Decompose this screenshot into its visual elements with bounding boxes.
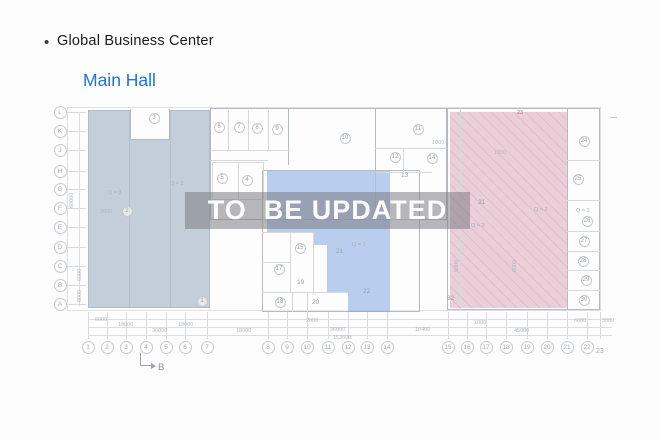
wall xyxy=(288,108,289,165)
room-number: 9 xyxy=(272,124,283,135)
grid-col-tick xyxy=(600,312,601,339)
room-number: 18 xyxy=(275,297,286,308)
room-number: 13 xyxy=(401,172,408,179)
grid-col-label: 15 xyxy=(442,341,455,354)
wall xyxy=(567,251,600,252)
dimension-label: 6000 xyxy=(454,260,460,272)
wall xyxy=(567,108,568,310)
dimension-label: 6000 xyxy=(77,290,83,302)
wall xyxy=(210,150,290,151)
grid-row-label: E xyxy=(54,221,67,234)
wall xyxy=(290,232,291,292)
grid-col-tick xyxy=(506,312,507,339)
section-marker-label: B xyxy=(158,362,164,373)
room-number: 25 xyxy=(573,174,584,185)
grid-col-tick xyxy=(268,312,269,339)
grid-col-tick xyxy=(567,312,568,339)
wall xyxy=(268,110,269,150)
grid-col-label: 18 xyxy=(500,341,513,354)
room-number: 26 xyxy=(582,216,593,227)
grid-row-label: J xyxy=(54,144,67,157)
room-number: 15 xyxy=(295,243,306,254)
grid-col-tick xyxy=(527,312,528,339)
wall xyxy=(403,148,404,172)
dimension-label: 6000 xyxy=(77,269,83,281)
room-number: 22 xyxy=(363,288,370,295)
grid-col-label: 12 xyxy=(342,341,355,354)
grid-row-tick xyxy=(68,112,86,113)
north-dash xyxy=(610,117,617,118)
room-number: 31 xyxy=(478,199,485,206)
dimension-label: 1000 xyxy=(474,320,486,326)
annotation-label: Q = 3 xyxy=(471,223,485,229)
wall xyxy=(567,160,600,161)
main-hall-link[interactable]: Main Hall xyxy=(83,70,156,91)
room-number: 7 xyxy=(234,122,245,133)
section-arrow-icon xyxy=(151,363,156,369)
grid-col-tick xyxy=(587,312,588,339)
wall xyxy=(262,232,313,233)
room-number: 21 xyxy=(336,248,343,255)
grid-col-label: 21 xyxy=(561,341,574,354)
grid-row-tick xyxy=(68,208,86,209)
grid-col-label: 4 xyxy=(140,341,153,354)
room-number: 28 xyxy=(578,256,589,267)
grid-col-label: 13 xyxy=(361,341,374,354)
annotation-label: 23 xyxy=(517,110,523,116)
dimension-label: 18000 xyxy=(178,322,193,328)
room-number: 27 xyxy=(579,236,590,247)
room-number: 32 xyxy=(447,295,454,302)
wall xyxy=(567,231,600,232)
annotation-label: Q = 3 xyxy=(352,242,366,248)
wall xyxy=(262,262,290,263)
grid-row-label: C xyxy=(54,260,67,273)
room-number: 17 xyxy=(274,264,285,275)
wall xyxy=(375,148,447,149)
screenshot-stage: • Global Business Center Main Hall B xyxy=(0,0,660,440)
wall xyxy=(210,160,268,161)
wall xyxy=(313,232,314,295)
wall xyxy=(567,290,600,291)
room-number: 29 xyxy=(581,275,592,286)
grid-col-tick xyxy=(448,312,449,339)
room-number: 10 xyxy=(340,133,351,144)
room-number: 2 xyxy=(122,206,133,217)
grid-col-tick xyxy=(88,312,89,339)
grid-col-label: 9 xyxy=(281,341,294,354)
annotation-label: Q = 3 xyxy=(170,181,184,187)
dimension-label: 18000 xyxy=(236,328,251,334)
grid-col-tick xyxy=(328,312,329,339)
grid-col-label: 10 xyxy=(301,341,314,354)
room-number: 3 xyxy=(149,113,160,124)
annotation-label: Q = 3 xyxy=(534,207,548,213)
room-number: 4 xyxy=(242,175,253,186)
grid-row-label: L xyxy=(54,106,67,119)
dimension-label: 18000 xyxy=(118,322,133,328)
grid-col-tick xyxy=(166,312,167,339)
wall xyxy=(228,110,229,150)
wall xyxy=(307,292,308,312)
grid-row-label: H xyxy=(54,165,67,178)
grid-col-label: 1 xyxy=(82,341,95,354)
grid-row-tick xyxy=(68,171,86,172)
grid-col-tick xyxy=(307,312,308,339)
room-number: 24 xyxy=(579,136,590,147)
dimension-label: 36000 xyxy=(152,328,167,334)
grid-col-label: 11 xyxy=(322,341,335,354)
grid-row-label: D xyxy=(54,241,67,254)
room-number: 30 xyxy=(579,295,590,306)
grid-col-label: 22 xyxy=(581,341,594,354)
grid-col-label: 3 xyxy=(120,341,133,354)
grid-row-tick xyxy=(68,266,86,267)
watermark-banner: TO BE UPDATED xyxy=(185,192,470,229)
room-number: 20 xyxy=(312,299,319,306)
room-number: 5 xyxy=(217,173,228,184)
grid-row-tick xyxy=(68,131,86,132)
dimension-label: 2000 xyxy=(306,318,318,324)
grid-col-label: 20 xyxy=(541,341,554,354)
grid-row-tick xyxy=(68,247,86,248)
grid-row-tick xyxy=(68,285,86,286)
grid-col-tick xyxy=(146,312,147,339)
room-number: 8 xyxy=(252,123,263,134)
grid-col-tick xyxy=(367,312,368,339)
page-title: Global Business Center xyxy=(57,33,214,49)
grid-col-label: 6 xyxy=(179,341,192,354)
room-number: 6 xyxy=(214,122,225,133)
dimension-label: 60000 xyxy=(69,193,75,208)
grid-col-tick xyxy=(287,312,288,339)
grid-row-label: F xyxy=(54,202,67,215)
dimension-label: 18400 xyxy=(415,327,430,333)
dimension-label: 2000 xyxy=(100,209,112,215)
room-number: 11 xyxy=(413,124,424,135)
grid-col-label: 7 xyxy=(201,341,214,354)
grid-col-label: 17 xyxy=(480,341,493,354)
grid-col-tick xyxy=(467,312,468,339)
grid-col-label: 23 xyxy=(596,348,604,355)
grid-col-tick xyxy=(207,312,208,339)
room-number: 1 xyxy=(197,296,208,307)
dimension-label: 3000 xyxy=(602,318,614,324)
dimension-label: 1000 xyxy=(494,150,506,156)
room-number: 19 xyxy=(297,279,304,286)
grid-col-tick xyxy=(547,312,548,339)
grid-col-label: 19 xyxy=(521,341,534,354)
dimension-label: 6000 xyxy=(95,317,107,323)
watermark-text: TO BE UPDATED xyxy=(208,195,448,226)
grid-col-label: 8 xyxy=(262,341,275,354)
dimension-label: 1000 xyxy=(432,140,444,146)
dimension-label: 6000 xyxy=(512,260,518,272)
grid-row-label: G xyxy=(54,183,67,196)
annotation-label: Q = 3 xyxy=(108,190,122,196)
grid-row-label: A xyxy=(54,298,67,311)
grid-col-label: 2 xyxy=(101,341,114,354)
grid-row-tick xyxy=(68,304,86,305)
wall xyxy=(292,292,293,312)
wall xyxy=(262,292,347,293)
wall xyxy=(567,270,600,271)
dimension-label: 36000 xyxy=(330,327,345,333)
grid-row-label: B xyxy=(54,279,67,292)
grid-row-label: K xyxy=(54,125,67,138)
grid-row-tick xyxy=(68,189,86,190)
room-number: 14 xyxy=(427,153,438,164)
annotation-label: Q = 3 xyxy=(576,208,590,214)
grid-row-tick xyxy=(68,150,86,151)
dimension-label: 6000 xyxy=(574,318,586,324)
room-number: 12 xyxy=(390,152,401,163)
grid-col-label: 16 xyxy=(461,341,474,354)
wall xyxy=(248,110,249,150)
grid-col-tick xyxy=(387,312,388,339)
grid-col-label: 14 xyxy=(381,341,394,354)
title-bullet: • xyxy=(44,34,49,51)
dimension-label: 45000 xyxy=(514,328,529,334)
wall xyxy=(567,200,600,201)
grid-col-label: 5 xyxy=(160,341,173,354)
grid-row-tick xyxy=(68,227,86,228)
